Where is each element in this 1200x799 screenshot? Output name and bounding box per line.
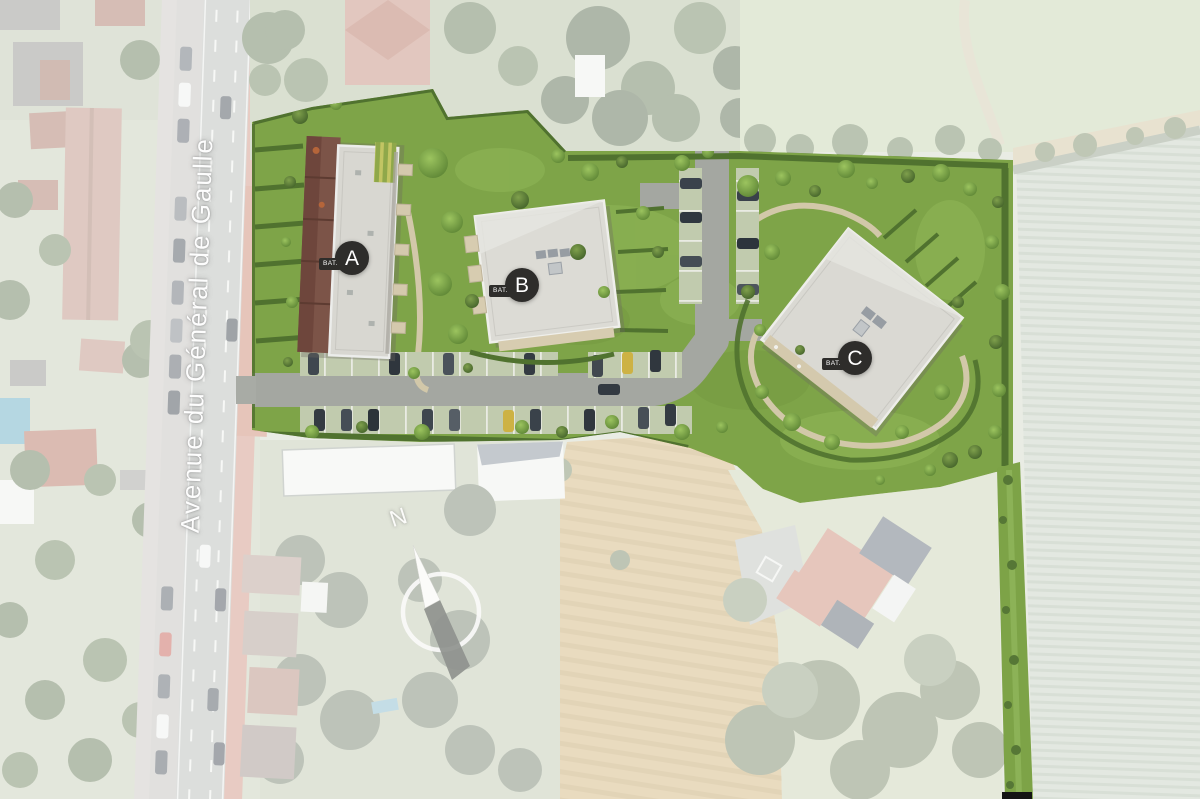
- building-marker-prefix: BAT.: [319, 258, 341, 270]
- aerial-site-plan: Avenue du Général de Gaulle N BAT. A BAT…: [0, 0, 1200, 799]
- compass-rose: N: [360, 500, 520, 700]
- building-marker-b[interactable]: BAT. B: [505, 268, 539, 302]
- building-marker-prefix: BAT.: [822, 358, 844, 370]
- building-marker-c[interactable]: BAT. C: [838, 341, 872, 375]
- site-entrance-driveway: [236, 376, 256, 404]
- building-marker-a[interactable]: BAT. A: [335, 241, 369, 275]
- bottom-edge-bar: [1002, 792, 1032, 799]
- building-marker-prefix: BAT.: [489, 285, 511, 297]
- north-arrow-icon: [360, 500, 520, 700]
